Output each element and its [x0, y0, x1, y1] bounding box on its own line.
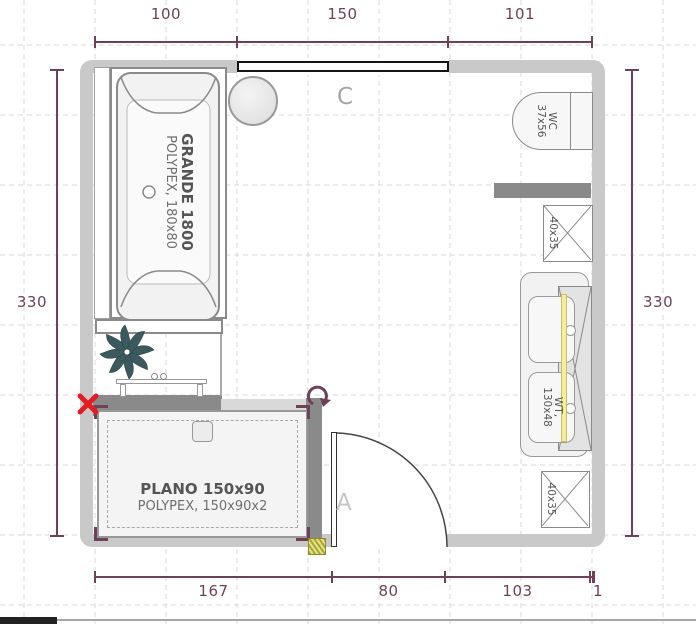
shower-name: PLANO 150x90	[99, 481, 306, 498]
dim-tick	[447, 36, 449, 48]
dim-top-1: 100	[95, 7, 237, 22]
window[interactable]	[237, 61, 449, 72]
dim-tick	[236, 36, 238, 48]
red-x-icon[interactable]	[76, 392, 100, 416]
dim-top-3: 101	[448, 7, 592, 22]
threshold-hatch-marker	[308, 538, 326, 555]
dim-tick	[591, 36, 593, 48]
dim-tick	[94, 571, 96, 583]
cabinet-lower-label: 40x35	[544, 480, 556, 518]
washtable-name: WT,	[552, 397, 564, 417]
dim-cap	[625, 535, 639, 537]
bathtub-label: GRANDE 1800 POLYPEX, 180x80	[162, 137, 196, 247]
wc-size: 37x56	[535, 105, 547, 138]
shower-spec: POLYPEX, 150x90x2	[99, 499, 306, 514]
wc-tank[interactable]	[570, 92, 593, 150]
dim-top-2: 150	[237, 7, 448, 22]
plant-icon[interactable]	[97, 322, 157, 382]
partition-wc	[494, 183, 591, 198]
dim-tick	[444, 571, 446, 583]
dim-tick	[94, 36, 96, 48]
faucet-knob	[151, 373, 158, 380]
screen-edge-bar	[0, 617, 57, 624]
dim-tick	[589, 571, 591, 583]
dim-tick	[331, 571, 333, 583]
bench-leg-right	[197, 384, 203, 397]
dim-right: 330	[643, 295, 676, 310]
dim-cap	[50, 69, 64, 71]
dim-bottom-4: 1	[590, 584, 606, 599]
dim-cap	[625, 69, 639, 71]
dim-line-left	[56, 70, 58, 537]
bench-leg-left	[120, 384, 126, 397]
partition-shower	[306, 398, 322, 540]
wc-label: WC 37x56	[534, 99, 558, 143]
door-label: A	[336, 492, 352, 515]
dim-bottom-2: 80	[332, 584, 445, 599]
dim-line-bottom	[95, 576, 594, 578]
round-stool[interactable]	[228, 76, 278, 126]
dim-line-top	[95, 41, 593, 43]
rotate-cw-icon[interactable]	[304, 385, 334, 413]
selection-bracket-bl	[94, 527, 108, 541]
bathtub-name: GRANDE 1800	[178, 133, 195, 251]
washtable-size: 130x48	[541, 387, 553, 427]
cabinet-lower-size: 40x35	[544, 483, 556, 516]
cabinet-upper-label: 40x35	[546, 214, 558, 252]
dim-cap	[50, 535, 64, 537]
window-label: C	[337, 86, 353, 109]
dim-left: 330	[14, 295, 47, 310]
floor-plan-canvas[interactable]: GRANDE 1800 POLYPEX, 180x80 PL	[0, 0, 696, 624]
shower-tray[interactable]: PLANO 150x90 POLYPEX, 150x90x2	[97, 410, 308, 538]
vanity-zone-border	[220, 334, 222, 396]
faucet-knob	[160, 373, 167, 380]
screen-edge-line	[0, 619, 696, 621]
washtable-label: WT, 130x48	[540, 384, 564, 430]
bathtub-spec: POLYPEX, 180x80	[163, 135, 178, 249]
dim-bottom-3: 103	[445, 584, 590, 599]
wc-name: WC	[546, 112, 558, 130]
shower-drain	[192, 421, 213, 442]
dim-line-right	[631, 70, 633, 537]
dim-bottom-1: 167	[95, 584, 332, 599]
cabinet-upper-size: 40x35	[546, 217, 558, 250]
